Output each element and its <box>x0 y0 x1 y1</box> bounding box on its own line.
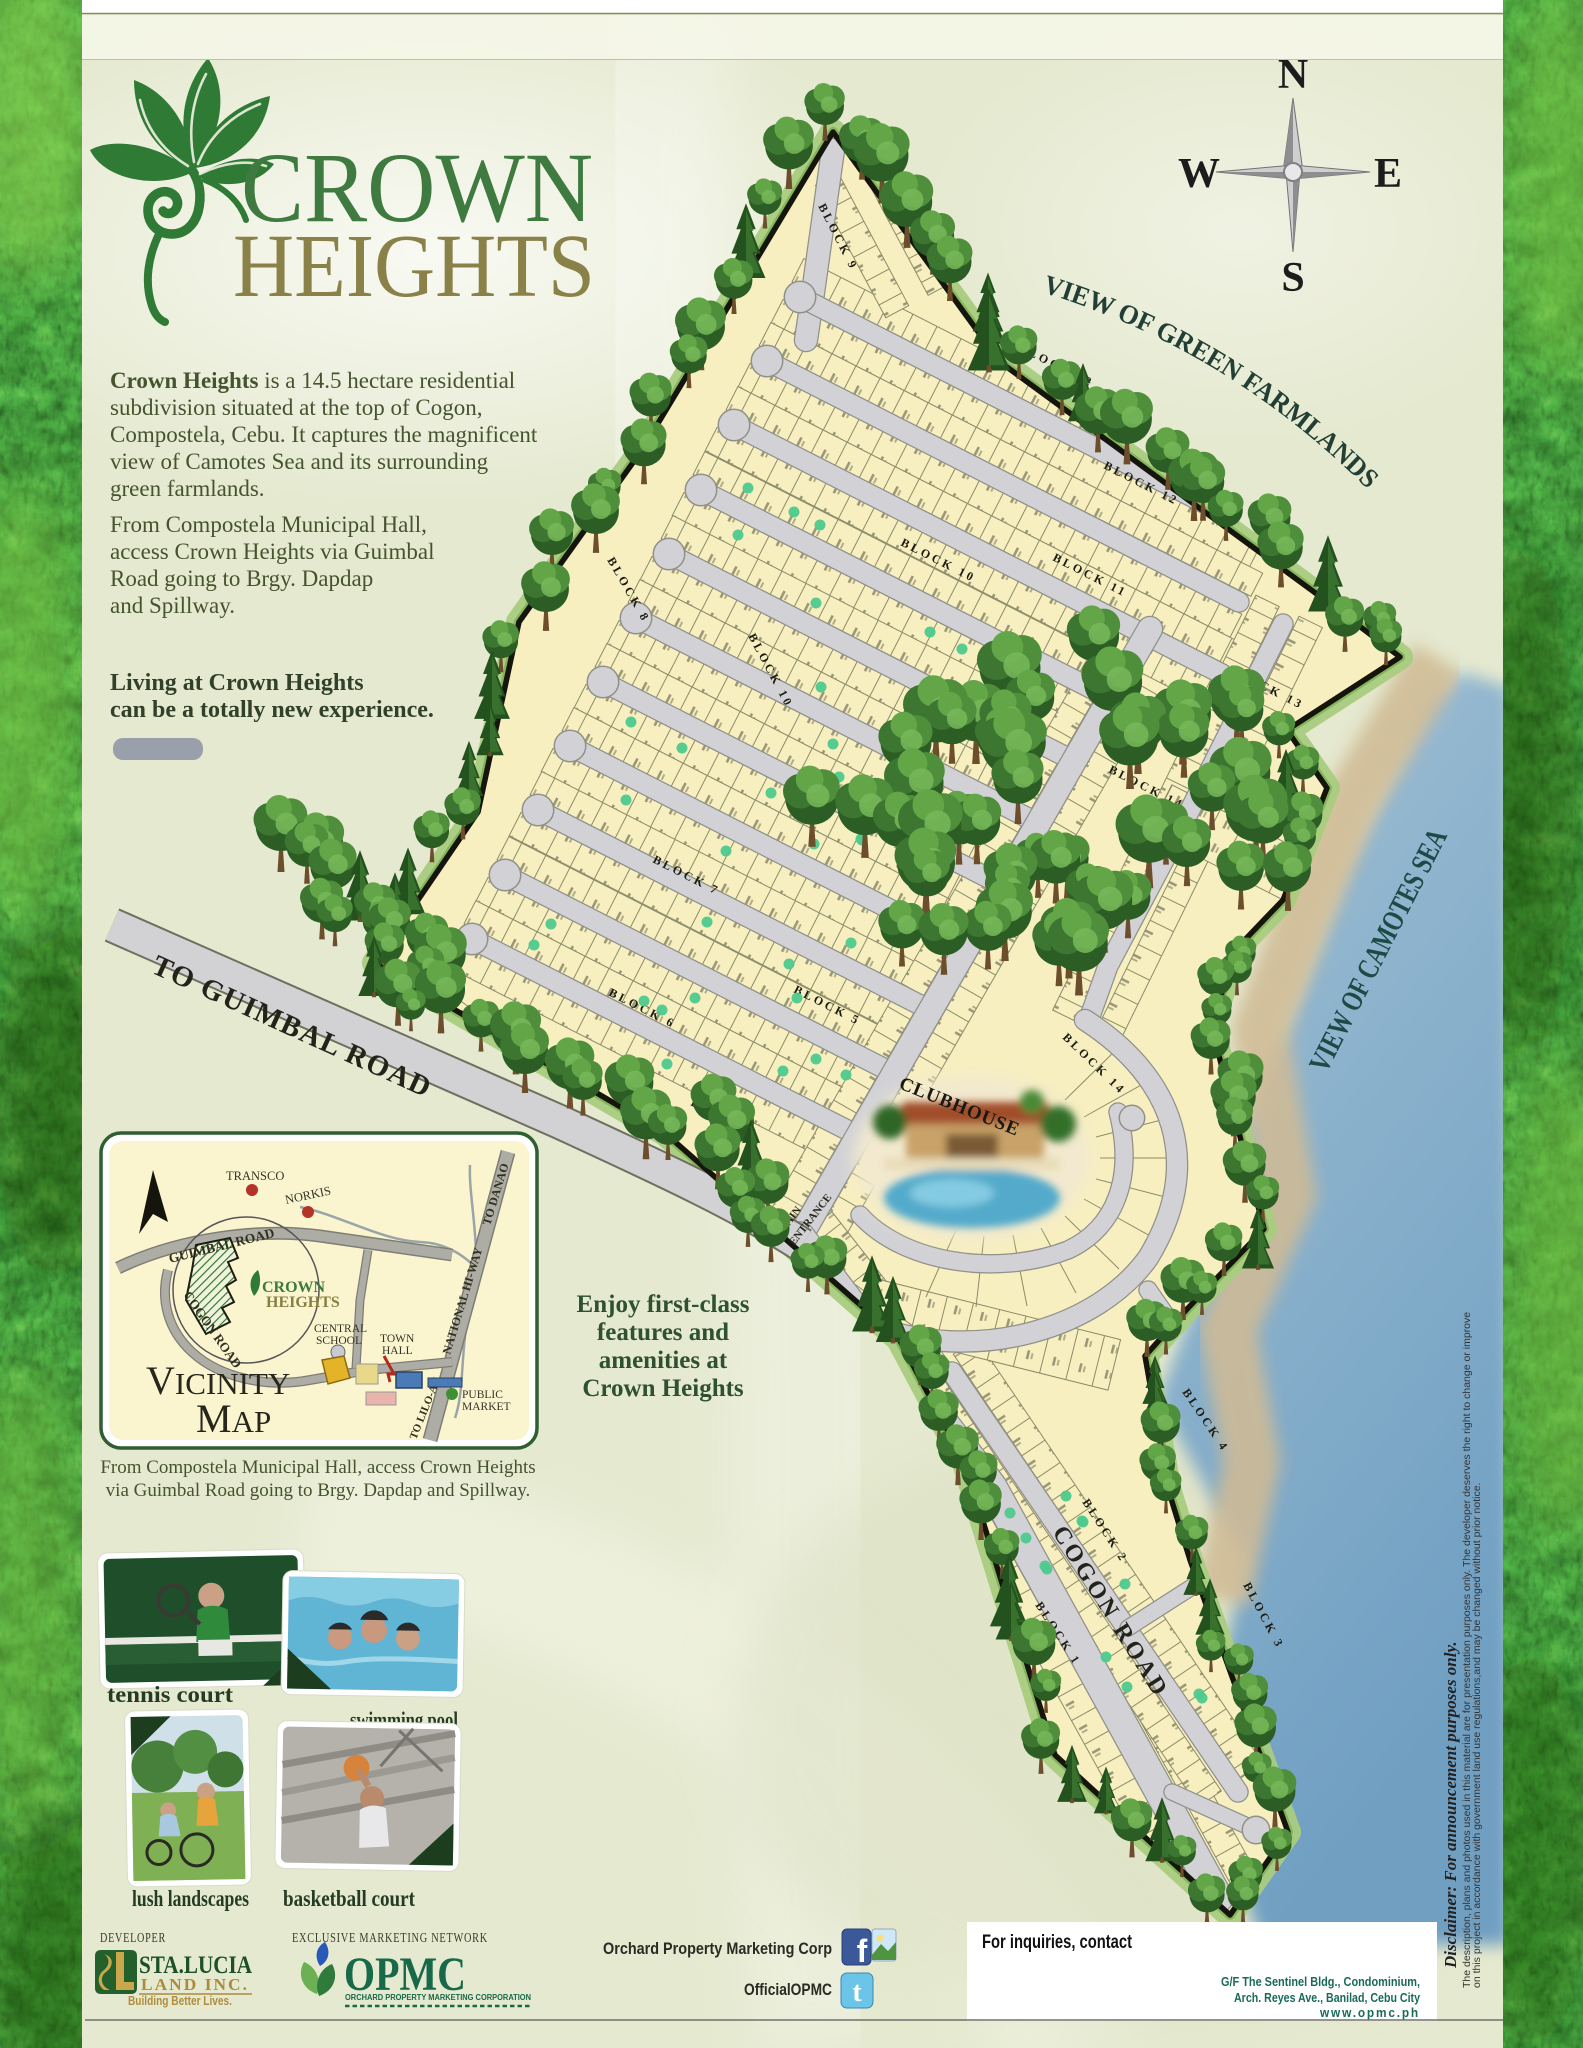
svg-text:HEIGHTS: HEIGHTS <box>266 1294 340 1311</box>
svg-text:Road going to Brgy. Dapdap: Road going to Brgy. Dapdap <box>110 566 373 591</box>
svg-text:From Compostela Municipal Hall: From Compostela Municipal Hall, <box>110 512 427 537</box>
svg-text:Disclaimer: For announcement p: Disclaimer: For announcement purposes on… <box>1441 1641 1460 1969</box>
svg-text:CENTRAL: CENTRAL <box>314 1323 367 1335</box>
svg-text:Enjoy first-class: Enjoy first-class <box>577 1291 750 1318</box>
svg-text:via Guimbal Road going to Brgy: via Guimbal Road going to Brgy. Dapdap a… <box>106 1480 531 1501</box>
svg-text:OfficialOPMC: OfficialOPMC <box>744 1980 832 1999</box>
svg-text:EXCLUSIVE MARKETING NETWORK: EXCLUSIVE MARKETING NETWORK <box>292 1931 488 1946</box>
svg-text:Living at Crown Heights: Living at Crown Heights <box>110 670 364 696</box>
svg-text:TRANSCO: TRANSCO <box>226 1169 284 1183</box>
svg-text:access Crown Heights via Guimb: access Crown Heights via Guimbal <box>110 539 434 564</box>
svg-text:ORCHARD PROPERTY MARKETING COR: ORCHARD PROPERTY MARKETING CORPORATION <box>345 1993 531 2002</box>
svg-text:www.opmc.ph: www.opmc.ph <box>1319 2005 1420 2020</box>
svg-text:Orchard Property Marketing Cor: Orchard Property Marketing Corp <box>603 1939 832 1958</box>
svg-text:green farmlands.: green farmlands. <box>110 476 265 501</box>
svg-text:Compostela, Cebu. It captures: Compostela, Cebu. It captures the magnif… <box>110 422 538 447</box>
svg-text:view of Camotes Sea and its su: view of Camotes Sea and its surrounding <box>110 449 489 474</box>
svg-text:From Compostela Municipal Hall: From Compostela Municipal Hall, access C… <box>100 1457 535 1478</box>
svg-text:LAND INC.: LAND INC. <box>141 1975 249 1994</box>
svg-text:For inquiries, contact: For inquiries, contact <box>982 1932 1133 1953</box>
svg-text:can be a totally new experienc: can be a totally new experience. <box>110 697 434 723</box>
svg-text:Crown Heights is a 14.5 hectar: Crown Heights is a 14.5 hectare resident… <box>110 368 515 393</box>
svg-text:HEIGHTS: HEIGHTS <box>233 217 595 316</box>
svg-text:and Spillway.: and Spillway. <box>110 593 235 618</box>
svg-text:lush landscapes: lush landscapes <box>132 1886 249 1911</box>
svg-text:on this project in accordance: on this project in accordance with gover… <box>1471 1483 1483 1988</box>
svg-text:subdivision situated at the to: subdivision situated at the top of Cogon… <box>110 395 482 420</box>
svg-text:S: S <box>1281 255 1304 301</box>
svg-text:basketball court: basketball court <box>283 1886 415 1911</box>
svg-text:TOWN: TOWN <box>380 1333 415 1345</box>
svg-text:Building Better Lives.: Building Better Lives. <box>128 1993 232 2008</box>
svg-text:W: W <box>1178 151 1220 197</box>
svg-text:MARKET: MARKET <box>462 1401 511 1413</box>
svg-text:G/F The Sentinel Bldg., Condom: G/F The Sentinel Bldg., Condominium, <box>1221 1974 1420 1989</box>
svg-text:t: t <box>852 1977 862 2008</box>
svg-text:E: E <box>1374 151 1402 197</box>
svg-text:PUBLIC: PUBLIC <box>462 1389 503 1401</box>
svg-text:HALL: HALL <box>382 1345 413 1357</box>
svg-text:Crown Heights: Crown Heights <box>582 1375 744 1402</box>
svg-text:amenities at: amenities at <box>599 1347 728 1374</box>
svg-text:f: f <box>857 1933 868 1969</box>
svg-text:DEVELOPER: DEVELOPER <box>100 1931 166 1946</box>
svg-text:tennis court: tennis court <box>107 1682 233 1707</box>
svg-text:features and: features and <box>597 1319 729 1346</box>
svg-text:Arch. Reyes Ave., Banilad, Ceb: Arch. Reyes Ave., Banilad, Cebu City <box>1234 1990 1421 2005</box>
